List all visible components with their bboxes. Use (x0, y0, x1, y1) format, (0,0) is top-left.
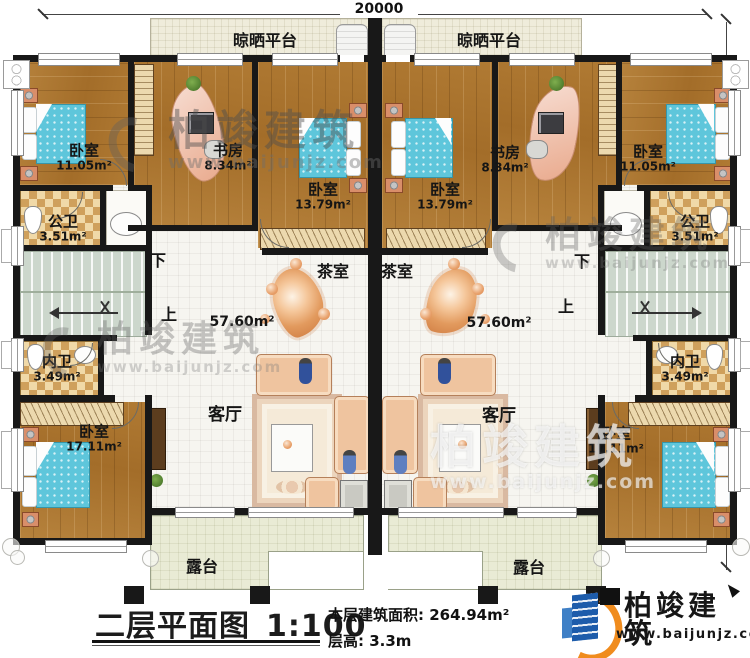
label-stair-up-right: 上 (558, 298, 574, 316)
stair-landing-line (605, 291, 730, 293)
shrub (732, 538, 750, 556)
staircase-left (20, 251, 147, 337)
wall (644, 190, 650, 245)
nightstand (349, 178, 367, 193)
wall (98, 341, 104, 395)
sofa (420, 354, 496, 396)
window (11, 226, 24, 266)
wall (262, 248, 368, 255)
stair-arrowhead (692, 307, 702, 319)
platform-door (340, 55, 364, 62)
wall (145, 395, 152, 545)
window (177, 53, 243, 66)
person-figure (299, 358, 312, 384)
window-sill (740, 431, 750, 489)
nightstand (22, 427, 39, 442)
label-bedroom-mid-left: 卧室 13.79m² (295, 181, 351, 212)
table-decor (283, 440, 292, 449)
tea-dot (318, 308, 330, 320)
terrace-step (268, 551, 363, 589)
nightstand (349, 103, 367, 118)
window-sill (1, 229, 12, 263)
wall (598, 251, 605, 335)
wall (13, 185, 113, 191)
label-public-bath-right: 公卫 3.51m² (671, 213, 718, 244)
tea-dot (472, 283, 484, 295)
window (45, 540, 127, 553)
pillow (22, 107, 37, 133)
top-dimension-label: 20000 (340, 1, 418, 17)
wall (128, 225, 258, 231)
label-inner-bath-right: 内卫 3.49m² (661, 353, 708, 384)
sink (110, 212, 142, 236)
armchair (305, 477, 339, 511)
pillow (22, 477, 37, 507)
pillow (22, 134, 37, 160)
label-bedroom-bottom-left: 卧室 17.11m² (66, 423, 122, 454)
closet (598, 64, 618, 156)
terrace-column (478, 586, 498, 604)
title-underline-thin (92, 645, 320, 646)
wall (100, 190, 106, 245)
label-drying-platform-right: 晾晒平台 (457, 32, 521, 50)
wall-center (368, 18, 382, 555)
logo-square-icon (600, 588, 620, 605)
shrub (593, 550, 610, 567)
computer-monitor (538, 112, 564, 134)
wall (128, 62, 134, 185)
window (11, 338, 24, 372)
title-block: 二层平面图 1:100 (95, 601, 367, 645)
terrace-door (248, 507, 354, 518)
window (414, 53, 480, 66)
nightstand (20, 166, 38, 181)
plant (549, 76, 564, 91)
window-sill (740, 341, 750, 369)
platform-door (386, 55, 410, 62)
wall (382, 248, 488, 255)
wall (492, 225, 622, 231)
wall (598, 395, 605, 545)
label-bedroom-top-left: 卧室 11.05m² (56, 142, 112, 173)
nightstand (713, 512, 730, 527)
wall (146, 185, 152, 251)
terrace-door (398, 507, 504, 518)
staircase-right (605, 251, 732, 337)
label-tea-room-left: 茶室 (317, 263, 349, 281)
tea-dot (266, 283, 278, 295)
pillow (22, 446, 37, 476)
window (630, 53, 712, 66)
label-drying-platform-left: 晾晒平台 (233, 32, 297, 50)
label-living-room-right: 客厅 (482, 407, 516, 427)
label-stair-down-left: 下 (150, 252, 166, 270)
table-decor (458, 440, 467, 449)
label-bedroom-bottom-right: 卧室 17.11m² (588, 425, 644, 456)
label-study-right: 书房 8.34m² (481, 144, 528, 175)
sink (610, 212, 642, 236)
window (625, 540, 707, 553)
window (175, 507, 235, 518)
pillow (391, 121, 406, 148)
rug-medallion (276, 480, 308, 494)
label-hall-area-left: 57.60m² (209, 314, 274, 330)
nightstand (385, 103, 403, 118)
label-terrace-left: 露台 (186, 558, 218, 576)
label-tea-room-right: 茶室 (381, 263, 413, 281)
label-stair-up-left: 上 (161, 306, 177, 324)
person-figure (343, 450, 356, 474)
computer-monitor (188, 112, 214, 134)
label-study-left: 书房 8.34m² (204, 142, 251, 173)
logo-building-icon-small (562, 607, 572, 638)
title-underline (92, 640, 320, 643)
window (272, 53, 338, 66)
window (11, 428, 24, 492)
label-hall-area-right: 57.60m² (466, 315, 531, 331)
label-living-room-left: 客厅 (208, 406, 242, 426)
shrub (142, 550, 159, 567)
wall (13, 245, 152, 251)
ac-unit (722, 60, 749, 89)
nightstand (22, 512, 39, 527)
tea-dot (448, 258, 460, 270)
window-sill (1, 341, 12, 369)
brand-website: www.baijunjz.com (616, 628, 750, 641)
floor-height-text: 层高: 3.3m (328, 630, 411, 651)
window (38, 53, 120, 66)
floor-area-text: 本层建筑面积: 264.94m² (328, 604, 509, 625)
label-public-bath-left: 公卫 3.51m² (39, 213, 86, 244)
label-stair-down-right: 下 (574, 253, 590, 271)
person-figure (438, 358, 451, 384)
logo-building-icon (572, 593, 598, 642)
wall (598, 185, 604, 251)
wall (637, 185, 737, 191)
terrace-step (388, 551, 483, 589)
ac-unit (3, 60, 30, 89)
wall (635, 395, 737, 402)
tea-dot (290, 258, 302, 270)
page-title: 二层平面图 (95, 601, 250, 645)
window-sill (1, 431, 12, 489)
plant (186, 76, 201, 91)
window (728, 90, 741, 156)
window-sill (740, 229, 750, 263)
stair-arrowhead (49, 307, 59, 319)
tea-dot (420, 308, 432, 320)
chair (526, 140, 548, 159)
window (517, 507, 577, 518)
closet (628, 402, 732, 426)
wall (598, 245, 737, 251)
wall (646, 341, 652, 395)
pillow (391, 149, 406, 176)
wall (13, 395, 115, 402)
window (11, 90, 24, 156)
window (509, 53, 575, 66)
armchair (413, 477, 447, 511)
label-inner-bath-left: 内卫 3.49m² (33, 353, 80, 384)
label-bedroom-mid-right: 卧室 13.79m² (417, 181, 473, 212)
person-figure (394, 450, 407, 474)
label-terrace-right: 露台 (513, 559, 545, 577)
coffee-table (271, 424, 313, 472)
wall (252, 62, 258, 225)
nightstand (385, 178, 403, 193)
sofa (256, 354, 332, 396)
label-bedroom-top-right: 卧室 11.05m² (620, 143, 676, 174)
shrub (10, 550, 25, 565)
closet (134, 64, 154, 156)
floor-plan-canvas: 20000 16300 (0, 0, 750, 658)
pillow (346, 149, 361, 176)
pillow (346, 121, 361, 148)
stair-landing-line (20, 291, 145, 293)
